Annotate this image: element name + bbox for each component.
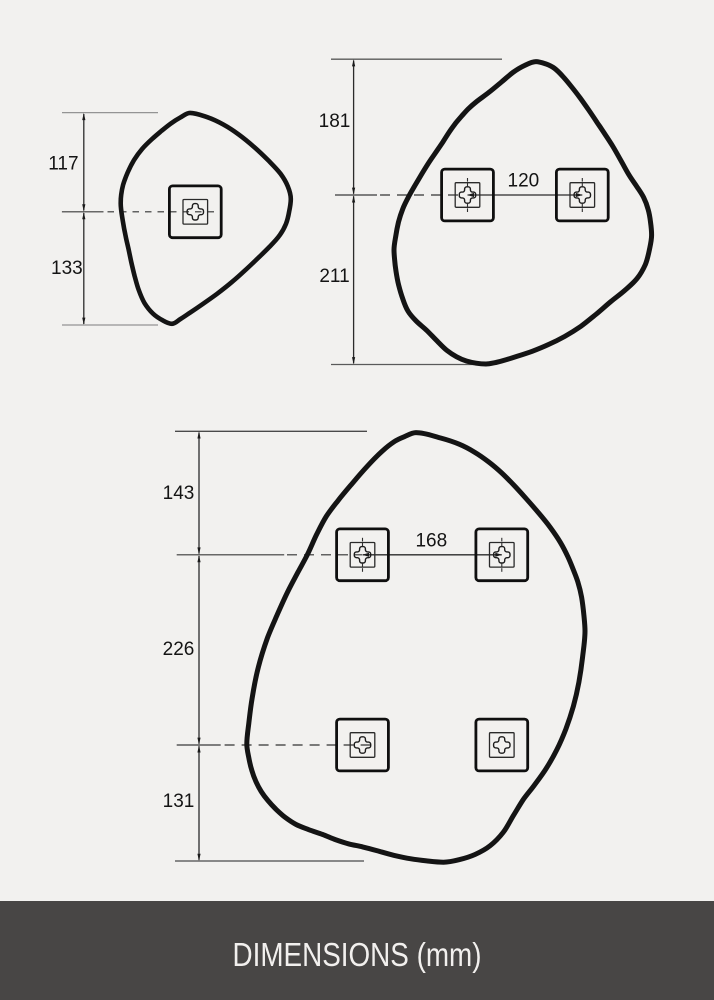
svg-text:133: 133 xyxy=(51,258,83,279)
svg-text:226: 226 xyxy=(163,639,195,660)
svg-text:DIMENSIONS (mm): DIMENSIONS (mm) xyxy=(233,936,482,973)
svg-text:143: 143 xyxy=(163,483,195,504)
svg-text:131: 131 xyxy=(163,791,195,812)
svg-text:181: 181 xyxy=(319,111,351,132)
svg-text:168: 168 xyxy=(415,530,447,551)
svg-text:211: 211 xyxy=(319,266,349,287)
svg-text:120: 120 xyxy=(508,170,540,191)
svg-text:117: 117 xyxy=(48,153,78,174)
